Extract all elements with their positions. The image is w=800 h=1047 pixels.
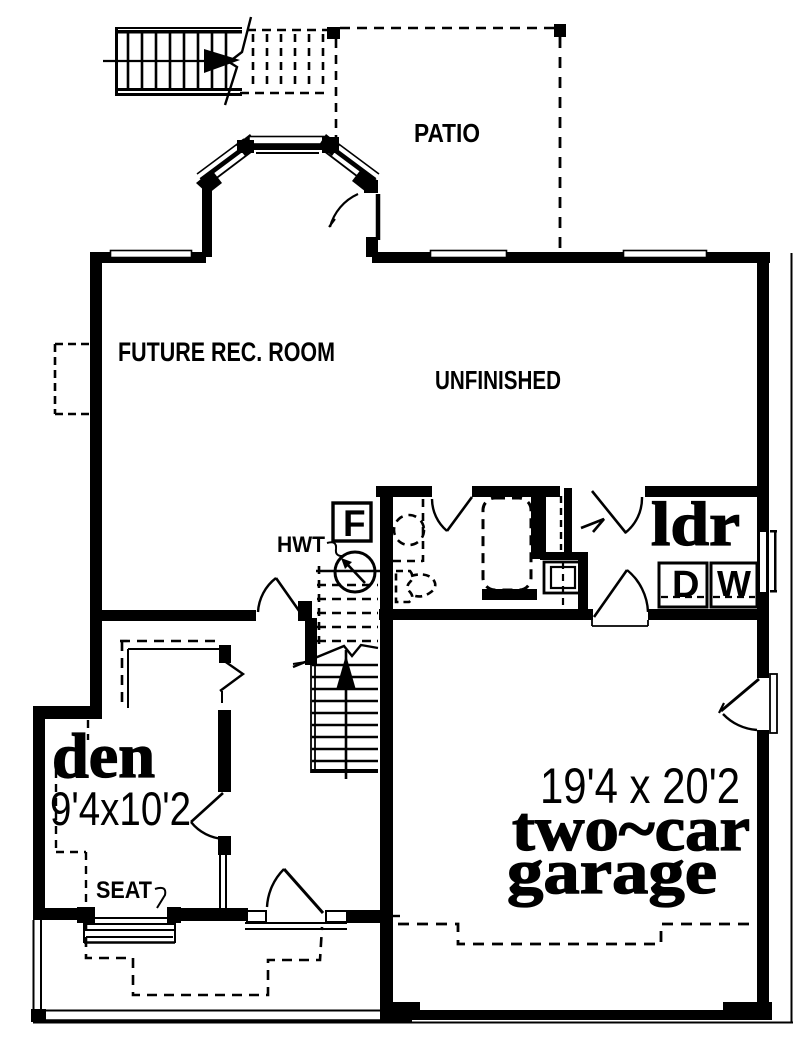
svg-text:SEAT: SEAT <box>96 877 152 904</box>
svg-text:garage: garage <box>507 836 717 907</box>
svg-text:HWT: HWT <box>277 532 326 557</box>
svg-text:W: W <box>717 563 751 604</box>
svg-text:9'4x10'2: 9'4x10'2 <box>50 782 191 835</box>
svg-text:UNFINISHED: UNFINISHED <box>435 365 561 395</box>
svg-text:F: F <box>343 503 366 544</box>
svg-text:PATIO: PATIO <box>414 118 480 148</box>
svg-text:D: D <box>672 564 699 606</box>
svg-text:FUTURE REC. ROOM: FUTURE REC. ROOM <box>118 337 335 367</box>
svg-text:den: den <box>52 720 155 791</box>
svg-text:ldr: ldr <box>651 491 740 559</box>
